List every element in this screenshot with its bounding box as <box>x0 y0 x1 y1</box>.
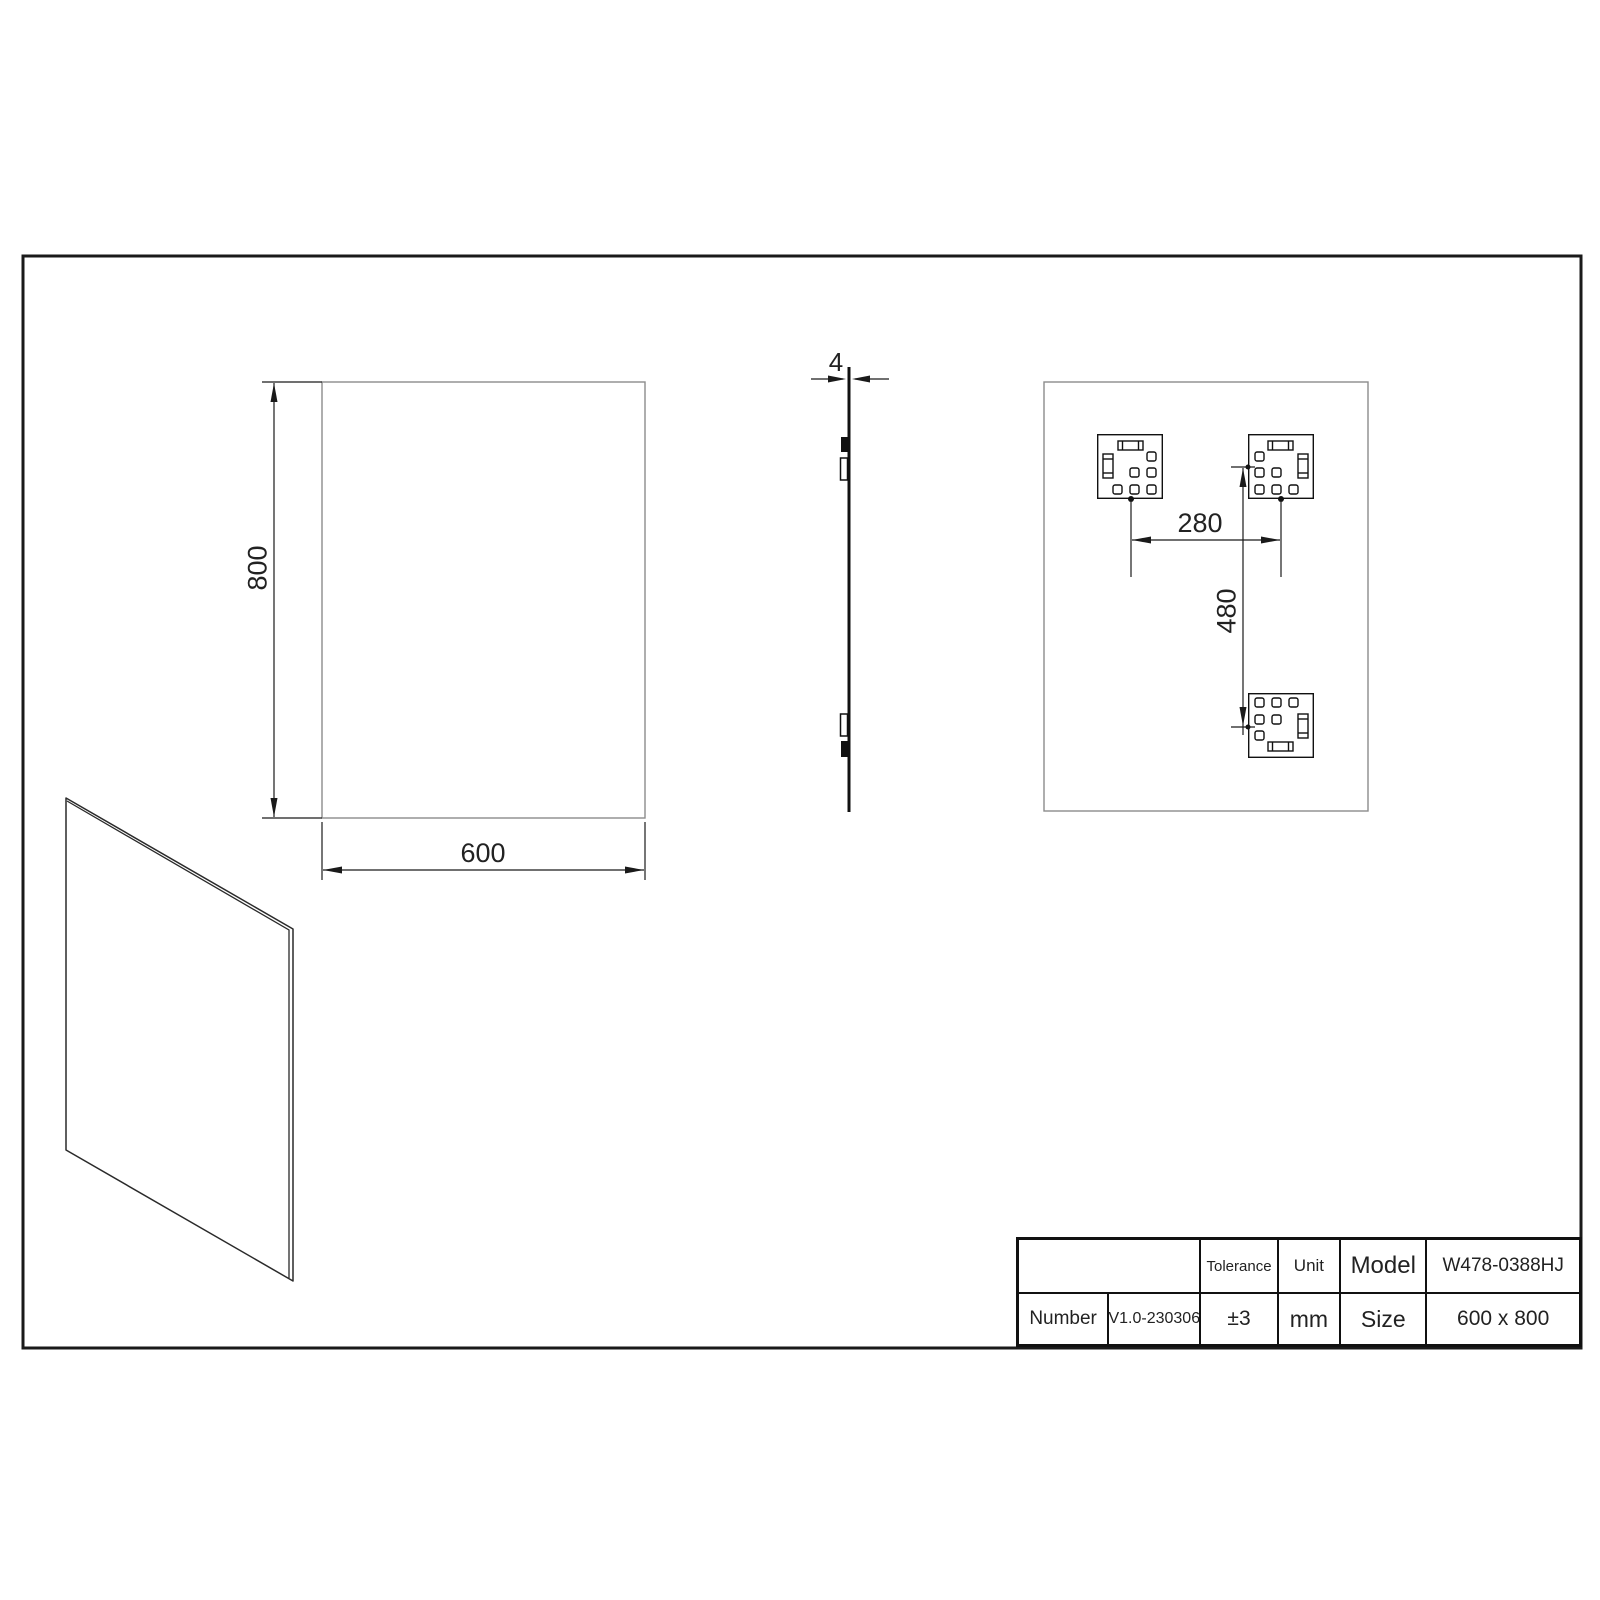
number-value: V1.0-230306 <box>1107 1292 1199 1344</box>
drawing-linework: 800 600 4 <box>0 0 1600 1600</box>
unit-header: Unit <box>1277 1240 1339 1292</box>
mounting-bracket-bottom <box>1249 694 1314 758</box>
front-view-outline <box>322 382 645 818</box>
unit-value: mm <box>1277 1292 1339 1344</box>
side-bracket-tab <box>841 437 850 452</box>
mounting-bracket-top-right <box>1249 435 1314 499</box>
mounting-bracket-top-left <box>1098 435 1163 499</box>
back-vertical-dimension-label: 480 <box>1211 588 1241 633</box>
model-header: Model <box>1339 1240 1425 1292</box>
side-bracket-clip <box>841 714 848 736</box>
dimension-arrow <box>323 867 342 874</box>
bracket-center-dot <box>1128 496 1134 502</box>
back-view: 280 480 <box>1044 382 1368 811</box>
title-block-empty-cell <box>1019 1240 1199 1292</box>
model-value: W478-0388HJ <box>1425 1240 1579 1292</box>
dimension-arrow <box>852 376 870 383</box>
tolerance-value: ±3 <box>1199 1292 1276 1344</box>
dimension-arrow <box>271 798 278 817</box>
back-view-outline <box>1044 382 1368 811</box>
front-height-dimension-label: 800 <box>242 545 272 590</box>
side-thickness-dimension-label: 4 <box>829 347 843 377</box>
front-width-dimension-label: 600 <box>460 838 505 868</box>
perspective-view <box>66 798 293 1281</box>
tolerance-header: Tolerance <box>1199 1240 1276 1292</box>
side-bracket-tab <box>841 741 850 757</box>
side-view: 4 <box>811 347 889 812</box>
front-view: 800 600 <box>242 382 645 880</box>
drawing-sheet: 800 600 4 <box>0 0 1600 1600</box>
size-value: 600 x 800 <box>1425 1292 1579 1344</box>
dimension-arrow <box>271 383 278 402</box>
size-header: Size <box>1339 1292 1425 1344</box>
title-block: Tolerance Unit Model W478-0388HJ Number … <box>1016 1237 1582 1347</box>
perspective-outline <box>66 798 293 1281</box>
dimension-arrow <box>625 867 644 874</box>
bracket-center-dot <box>1278 496 1284 502</box>
side-bracket-clip <box>841 458 848 480</box>
front-height-dimension <box>262 382 322 818</box>
number-header: Number <box>1019 1292 1107 1344</box>
back-horizontal-dimension-label: 280 <box>1177 508 1222 538</box>
